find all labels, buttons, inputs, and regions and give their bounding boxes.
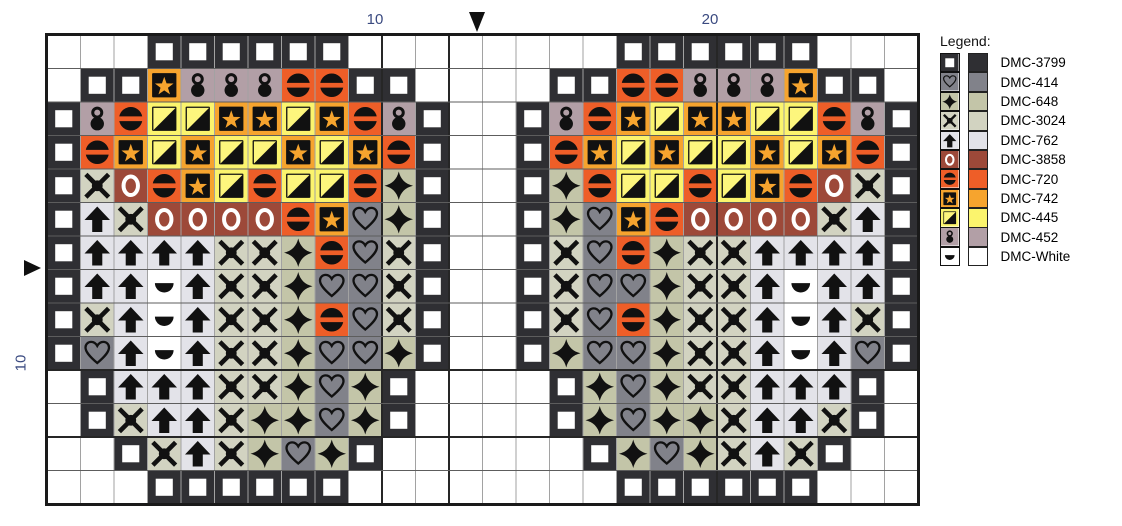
grid-cell-diagonal-square: [282, 102, 316, 136]
grid-cell-circle-bar: [617, 303, 651, 337]
grid-cell-cross-x: [550, 303, 584, 337]
grid-cell-open-square: [885, 236, 919, 270]
grid-cell-double-dot: [851, 102, 885, 136]
grid-cell-cross-x: [550, 236, 584, 270]
grid-cell-arrow-up: [148, 404, 182, 438]
legend-row: DMC-3858: [940, 150, 1070, 169]
grid-cell-open-square: [349, 69, 383, 103]
grid-cell-open-square: [47, 270, 81, 304]
grid-cell-four-point-star: [684, 437, 718, 471]
grid-cell-open-square: [717, 471, 751, 505]
grid-cell-cross-x: [717, 303, 751, 337]
grid-cell-heart-outline: [583, 303, 617, 337]
legend-row: DMC-762: [940, 131, 1070, 150]
grid-cell-double-dot: [751, 69, 785, 103]
grid-cell-cross-x: [818, 404, 852, 438]
grid-cell-arrow-up: [751, 236, 785, 270]
grid-cell-open-square: [684, 35, 718, 69]
grid-cell-cross-x: [684, 337, 718, 371]
grid-cell-four-point-star: [382, 169, 416, 203]
grid-cell-cross-x: [81, 169, 115, 203]
grid-cell-open-square: [784, 471, 818, 505]
grid-cell-half-moon: [784, 337, 818, 371]
grid-cell-boxed-star: [818, 136, 852, 170]
grid-cell-cross-x: [382, 236, 416, 270]
grid-cell-half-moon: [784, 303, 818, 337]
grid-cell-cross-x: [215, 303, 249, 337]
grid-cell-open-square: [818, 437, 852, 471]
grid-cell-circle-bar: [583, 102, 617, 136]
grid-cell-arrow-up: [148, 236, 182, 270]
grid-cell-circle-bar: [583, 169, 617, 203]
grid-cell-open-square: [416, 203, 450, 237]
legend-symbol-four-point-star-icon: [940, 92, 960, 112]
grid-cell-boxed-star: [282, 136, 316, 170]
legend-label: DMC-452: [1001, 230, 1059, 245]
grid-cell-heart-outline: [617, 404, 651, 438]
grid-cell-cross-x: [717, 370, 751, 404]
legend-color-swatch: [968, 72, 988, 92]
legend-rows: DMC-3799 DMC-414 DMC-648 DMC-3024 DMC-76…: [940, 53, 1070, 266]
grid-cell-four-point-star: [282, 303, 316, 337]
grid-cell-double-dot: [550, 102, 584, 136]
grid-cell-diagonal-square: [215, 169, 249, 203]
grid-cell-four-point-star: [550, 169, 584, 203]
grid-cell-four-point-star: [550, 203, 584, 237]
grid-cell-four-point-star: [282, 270, 316, 304]
grid-cell-circle-bar: [617, 69, 651, 103]
grid-cell-open-square: [148, 471, 182, 505]
pattern-chart: [45, 33, 920, 506]
grid-cell-circle-bar: [315, 236, 349, 270]
grid-cell-arrow-up: [851, 236, 885, 270]
legend-color-swatch: [968, 53, 988, 73]
grid-cell-four-point-star: [650, 270, 684, 304]
grid-cell-cross-x: [148, 437, 182, 471]
grid-cell-open-square: [47, 303, 81, 337]
grid-cell-open-square: [516, 236, 550, 270]
grid-cell-diagonal-square: [215, 136, 249, 170]
grid-cell-circle-bar: [650, 69, 684, 103]
grid-cell-open-square: [81, 370, 115, 404]
grid-cell-circle-bar: [349, 169, 383, 203]
grid-cell-open-square: [282, 35, 316, 69]
grid-cell-arrow-up: [751, 437, 785, 471]
grid-cell-cross-x: [215, 437, 249, 471]
grid-cell-diagonal-square: [751, 102, 785, 136]
grid-cell-circle-bar: [617, 236, 651, 270]
legend-symbol-arrow-up-icon: [940, 131, 960, 151]
grid-cell-four-point-star: [248, 404, 282, 438]
legend-symbol-circle-bar-icon: [940, 169, 960, 189]
grid-cell-open-square: [516, 303, 550, 337]
legend-symbol-half-moon-icon: [940, 247, 960, 267]
grid-cell-arrow-up: [818, 303, 852, 337]
grid-cell-diagonal-square: [617, 169, 651, 203]
legend-symbol-boxed-star-icon: [940, 189, 960, 209]
grid-cell-open-square: [583, 437, 617, 471]
grid-cell-open-square: [617, 471, 651, 505]
grid-cell-open-square: [349, 437, 383, 471]
grid-cell-circle-bar: [248, 169, 282, 203]
grid-cell-circle-bar: [282, 69, 316, 103]
grid-cell-cross-x: [684, 303, 718, 337]
grid-cell-open-square: [550, 404, 584, 438]
grid-cell-diagonal-square: [248, 136, 282, 170]
grid-cell-heart-outline: [583, 270, 617, 304]
grid-cell-cross-x: [717, 437, 751, 471]
cross-stitch-pattern-page: { "chart": { "cols": 26, "rows": 14, "ce…: [0, 0, 1122, 526]
grid-cell-open-square: [47, 203, 81, 237]
grid-cell-heart-outline: [315, 404, 349, 438]
grid-cell-cross-x: [717, 404, 751, 438]
legend-row: DMC-720: [940, 169, 1070, 188]
legend-color-swatch: [968, 247, 988, 267]
grid-cell-open-square: [885, 102, 919, 136]
grid-cell-arrow-up: [114, 303, 148, 337]
grid-cell-cross-x: [215, 236, 249, 270]
center-marker-right-triangle-icon: [24, 260, 41, 276]
grid-cell-letter-o: [181, 203, 215, 237]
grid-cell-open-square: [516, 169, 550, 203]
grid-cell-open-square: [516, 203, 550, 237]
grid-cell-boxed-star: [315, 203, 349, 237]
grid-cell-cross-x: [215, 404, 249, 438]
grid-cell-cross-x: [81, 303, 115, 337]
legend-title: Legend:: [940, 33, 1070, 49]
grid-cell-double-dot: [684, 69, 718, 103]
grid-cell-half-moon: [148, 303, 182, 337]
grid-cell-cross-x: [248, 270, 282, 304]
legend-color-swatch: [968, 150, 988, 170]
grid-cell-four-point-star: [349, 370, 383, 404]
grid-cell-boxed-star: [315, 102, 349, 136]
grid-cell-arrow-up: [751, 404, 785, 438]
grid-cell-open-square: [181, 471, 215, 505]
grid-cell-diagonal-square: [717, 136, 751, 170]
grid-cell-open-square: [885, 270, 919, 304]
grid-cell-double-dot: [248, 69, 282, 103]
grid-cell-arrow-up: [181, 437, 215, 471]
grid-cell-diagonal-square: [315, 169, 349, 203]
grid-cell-heart-outline: [583, 203, 617, 237]
legend-row: DMC-3024: [940, 111, 1070, 130]
legend-label: DMC-White: [1001, 249, 1071, 264]
grid-cell-heart-outline: [81, 337, 115, 371]
grid-cell-cross-x: [215, 370, 249, 404]
grid-cell-circle-bar: [851, 136, 885, 170]
legend-label: DMC-414: [1001, 75, 1059, 90]
grid-cell-open-square: [416, 270, 450, 304]
grid-cell-four-point-star: [382, 337, 416, 371]
grid-cell-cross-x: [717, 236, 751, 270]
grid-cell-arrow-up: [818, 236, 852, 270]
grid-cell-open-square: [516, 102, 550, 136]
grid-cell-arrow-up: [784, 370, 818, 404]
grid-cell-open-square: [382, 370, 416, 404]
grid-cell-arrow-up: [751, 337, 785, 371]
grid-cell-boxed-star: [349, 136, 383, 170]
grid-cell-letter-o: [751, 203, 785, 237]
legend-symbol-heart-outline-icon: [940, 72, 960, 92]
grid-cell-four-point-star: [650, 236, 684, 270]
grid-cell-letter-o: [717, 203, 751, 237]
grid-cell-open-square: [550, 69, 584, 103]
legend-symbol-double-dot-icon: [940, 227, 960, 247]
ruler-label-top-20: 20: [702, 11, 719, 28]
grid-cell-diagonal-square: [784, 102, 818, 136]
legend-row: DMC-3799: [940, 53, 1070, 72]
grid-cell-cross-x: [851, 303, 885, 337]
grid-cell-arrow-up: [114, 270, 148, 304]
grid-cell-cross-x: [382, 270, 416, 304]
grid-cell-half-moon: [148, 270, 182, 304]
grid-cell-four-point-star: [550, 337, 584, 371]
grid-cell-heart-outline: [282, 437, 316, 471]
grid-cell-diagonal-square: [181, 102, 215, 136]
grid-cell-cross-x: [717, 270, 751, 304]
grid-cell-arrow-up: [851, 203, 885, 237]
grid-cell-heart-outline: [583, 236, 617, 270]
grid-cell-open-square: [650, 471, 684, 505]
grid-cell-diagonal-square: [650, 102, 684, 136]
grid-cell-letter-o: [248, 203, 282, 237]
center-marker-down-triangle-icon: [469, 12, 485, 32]
grid-cell-double-dot: [81, 102, 115, 136]
grid-cell-four-point-star: [282, 370, 316, 404]
grid-cell-circle-bar: [315, 303, 349, 337]
grid-cell-arrow-up: [181, 270, 215, 304]
grid-cell-cross-x: [248, 236, 282, 270]
grid-cell-arrow-up: [114, 236, 148, 270]
grid-cell-letter-o: [684, 203, 718, 237]
grid-cell-circle-bar: [818, 102, 852, 136]
grid-cell-cross-x: [784, 437, 818, 471]
grid-cell-arrow-up: [818, 337, 852, 371]
legend-color-swatch: [968, 92, 988, 112]
legend-label: DMC-742: [1001, 191, 1059, 206]
grid-cell-arrow-up: [114, 337, 148, 371]
pattern-chart-svg: [45, 33, 920, 506]
grid-cell-circle-bar: [382, 136, 416, 170]
grid-cell-diagonal-square: [684, 136, 718, 170]
grid-cell-four-point-star: [650, 404, 684, 438]
grid-cell-cross-x: [550, 270, 584, 304]
grid-cell-arrow-up: [81, 203, 115, 237]
grid-cell-four-point-star: [315, 437, 349, 471]
legend-row: DMC-White: [940, 247, 1070, 266]
grid-cell-four-point-star: [382, 203, 416, 237]
grid-cell-open-square: [47, 236, 81, 270]
grid-cell-open-square: [81, 404, 115, 438]
legend-label: DMC-3799: [1001, 55, 1066, 70]
legend-color-swatch: [968, 111, 988, 131]
grid-cell-boxed-star: [784, 69, 818, 103]
grid-cell-open-square: [885, 136, 919, 170]
grid-cell-arrow-up: [751, 270, 785, 304]
grid-cell-open-square: [851, 69, 885, 103]
grid-cell-open-square: [818, 69, 852, 103]
grid-cell-boxed-star: [181, 169, 215, 203]
grid-cell-open-square: [114, 437, 148, 471]
grid-cell-boxed-star: [717, 102, 751, 136]
grid-cell-letter-o: [148, 203, 182, 237]
grid-cell-arrow-up: [114, 370, 148, 404]
grid-cell-heart-outline: [583, 337, 617, 371]
grid-cell-circle-bar: [684, 169, 718, 203]
legend-label: DMC-762: [1001, 133, 1059, 148]
grid-cell-cross-x: [215, 337, 249, 371]
ruler-label-top-10: 10: [367, 11, 384, 28]
grid-cell-heart-outline: [617, 270, 651, 304]
grid-cell-open-square: [583, 69, 617, 103]
grid-cell-boxed-star: [215, 102, 249, 136]
grid-cell-boxed-star: [751, 169, 785, 203]
grid-cell-cross-x: [717, 337, 751, 371]
grid-cell-open-square: [751, 35, 785, 69]
grid-cell-circle-bar: [650, 203, 684, 237]
grid-cell-arrow-up: [818, 270, 852, 304]
grid-cell-double-dot: [215, 69, 249, 103]
grid-cell-double-dot: [717, 69, 751, 103]
grid-cell-cross-x: [818, 203, 852, 237]
legend-color-swatch: [968, 131, 988, 151]
grid-cell-arrow-up: [181, 370, 215, 404]
grid-cell-letter-o: [818, 169, 852, 203]
legend-color-swatch: [968, 227, 988, 247]
grid-cell-open-square: [81, 69, 115, 103]
grid-cell-heart-outline: [349, 303, 383, 337]
grid-cell-heart-outline: [349, 203, 383, 237]
grid-cell-circle-bar: [550, 136, 584, 170]
grid-cell-open-square: [617, 35, 651, 69]
grid-cell-open-square: [416, 169, 450, 203]
grid-cell-open-square: [851, 404, 885, 438]
grid-cell-four-point-star: [617, 437, 651, 471]
grid-cell-arrow-up: [81, 270, 115, 304]
grid-cell-cross-x: [382, 303, 416, 337]
grid-cell-cross-x: [248, 370, 282, 404]
grid-cell-four-point-star: [349, 404, 383, 438]
legend-row: DMC-742: [940, 189, 1070, 208]
grid-cell-open-square: [148, 35, 182, 69]
grid-cell-boxed-star: [114, 136, 148, 170]
grid-cell-arrow-up: [784, 236, 818, 270]
grid-cell-open-square: [47, 102, 81, 136]
grid-cell-cross-x: [851, 169, 885, 203]
grid-cell-four-point-star: [583, 370, 617, 404]
grid-cell-open-square: [550, 370, 584, 404]
grid-cell-heart-outline: [851, 337, 885, 371]
grid-cell-open-square: [885, 203, 919, 237]
grid-cell-boxed-star: [181, 136, 215, 170]
grid-cell-open-square: [650, 35, 684, 69]
grid-cell-heart-outline: [349, 270, 383, 304]
grid-cell-letter-o: [215, 203, 249, 237]
grid-cell-cross-x: [248, 337, 282, 371]
legend-row: DMC-445: [940, 208, 1070, 227]
grid-cell-arrow-up: [751, 370, 785, 404]
grid-cell-open-square: [684, 471, 718, 505]
grid-cell-open-square: [215, 35, 249, 69]
grid-cell-arrow-up: [81, 236, 115, 270]
grid-cell-boxed-star: [617, 203, 651, 237]
grid-cell-open-square: [851, 370, 885, 404]
grid-cell-four-point-star: [282, 236, 316, 270]
grid-cell-cross-x: [114, 404, 148, 438]
grid-cell-open-square: [416, 337, 450, 371]
grid-cell-circle-bar: [315, 69, 349, 103]
grid-cell-double-dot: [382, 102, 416, 136]
grid-cell-open-square: [416, 102, 450, 136]
grid-cell-open-square: [416, 136, 450, 170]
grid-cell-open-square: [382, 69, 416, 103]
grid-cell-cross-x: [684, 270, 718, 304]
legend-label: DMC-3024: [1001, 113, 1066, 128]
grid-cell-diagonal-square: [617, 136, 651, 170]
grid-cell-open-square: [416, 303, 450, 337]
grid-cell-open-square: [47, 337, 81, 371]
grid-cell-circle-bar: [114, 102, 148, 136]
grid-cell-cross-x: [684, 370, 718, 404]
grid-cell-four-point-star: [282, 404, 316, 438]
grid-cell-diagonal-square: [282, 169, 316, 203]
grid-cell-open-square: [315, 471, 349, 505]
grid-cell-diagonal-square: [784, 136, 818, 170]
grid-cell-heart-outline: [349, 337, 383, 371]
grid-cell-arrow-up: [751, 303, 785, 337]
grid-cell-double-dot: [181, 69, 215, 103]
grid-cell-open-square: [282, 471, 316, 505]
grid-cell-heart-outline: [315, 270, 349, 304]
legend-label: DMC-3858: [1001, 152, 1066, 167]
legend-color-swatch: [968, 189, 988, 209]
grid-cell-cross-x: [114, 203, 148, 237]
legend-color-swatch: [968, 208, 988, 228]
grid-cell-arrow-up: [851, 270, 885, 304]
legend-panel: Legend: DMC-3799 DMC-414 DMC-648 DMC-302…: [940, 33, 1070, 266]
grid-cell-circle-bar: [784, 169, 818, 203]
grid-cell-open-square: [784, 35, 818, 69]
grid-cell-four-point-star: [282, 337, 316, 371]
grid-cell-arrow-up: [784, 404, 818, 438]
grid-cell-arrow-up: [181, 337, 215, 371]
grid-cell-boxed-star: [617, 102, 651, 136]
grid-cell-boxed-star: [650, 136, 684, 170]
grid-cell-arrow-up: [181, 303, 215, 337]
grid-cell-half-moon: [784, 270, 818, 304]
legend-row: DMC-414: [940, 72, 1070, 91]
grid-cell-four-point-star: [650, 370, 684, 404]
grid-cell-heart-outline: [617, 370, 651, 404]
grid-cell-four-point-star: [650, 303, 684, 337]
grid-cell-diagonal-square: [148, 136, 182, 170]
grid-cell-heart-outline: [315, 337, 349, 371]
grid-cell-open-square: [47, 169, 81, 203]
grid-cell-open-square: [181, 35, 215, 69]
grid-cell-cross-x: [248, 303, 282, 337]
grid-cell-heart-outline: [349, 236, 383, 270]
legend-color-swatch: [968, 169, 988, 189]
grid-cell-diagonal-square: [650, 169, 684, 203]
legend-symbol-cross-x-icon: [940, 111, 960, 131]
grid-cell-arrow-up: [818, 370, 852, 404]
grid-cell-arrow-up: [148, 370, 182, 404]
grid-cell-boxed-star: [684, 102, 718, 136]
grid-cell-cross-x: [684, 236, 718, 270]
grid-cell-arrow-up: [181, 236, 215, 270]
grid-cell-open-square: [516, 136, 550, 170]
